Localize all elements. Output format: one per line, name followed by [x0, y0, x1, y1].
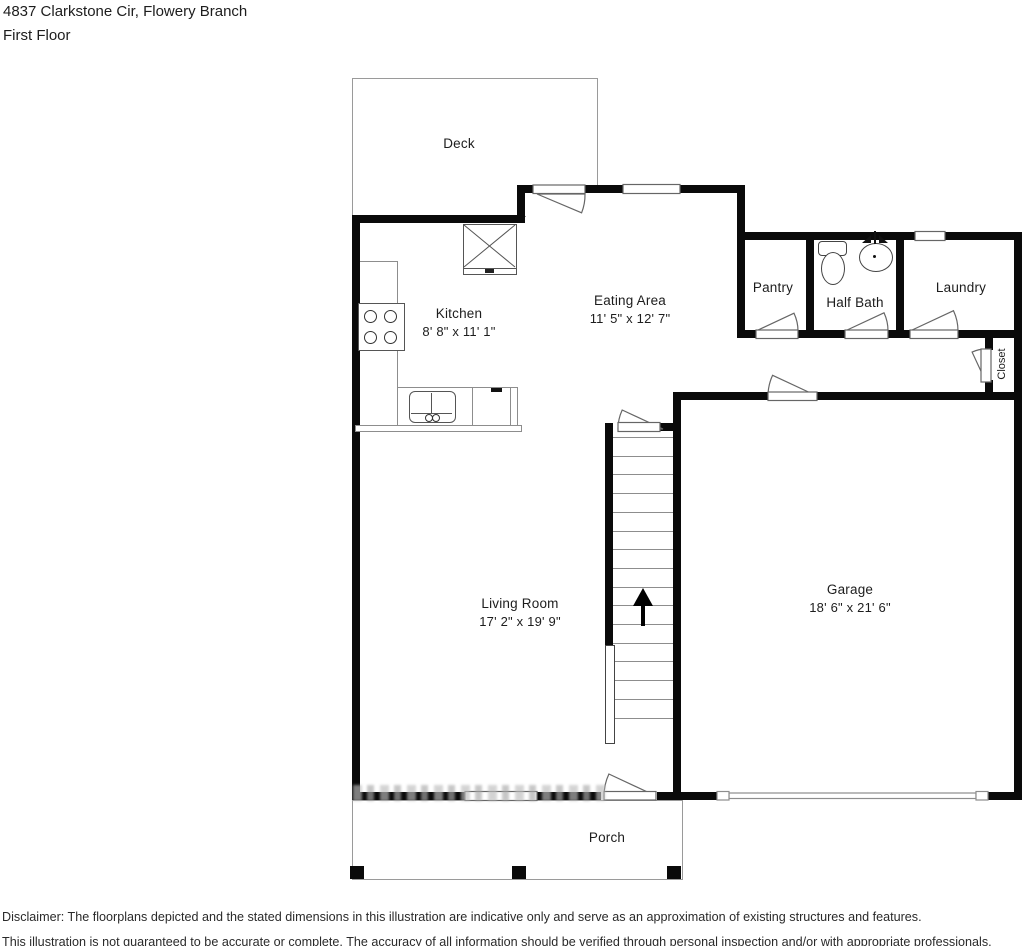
wall-eating-top — [585, 185, 623, 193]
kitchen-label: Kitchen — [436, 306, 482, 321]
stove-burner — [364, 331, 377, 344]
stair-tread — [613, 474, 673, 475]
vent-mark — [485, 269, 494, 273]
stair-tread — [613, 643, 673, 644]
living-room-dims: 17' 2" x 19' 9" — [479, 614, 561, 629]
wall-closet-left — [985, 380, 993, 392]
deck-outline-left — [352, 78, 526, 217]
stove-burner — [364, 310, 377, 323]
toilet-bowl — [821, 252, 845, 285]
wall-back-bottom — [888, 330, 910, 338]
floorplan-canvas: 4837 Clarkstone Cir, Flowery Branch Firs… — [0, 0, 1027, 946]
living-room-label: Living Room — [481, 596, 558, 611]
stair-tread — [613, 661, 673, 662]
eating-area-label: Eating Area — [594, 293, 666, 308]
wall-stairs-left — [605, 423, 613, 645]
watermark — [353, 785, 608, 801]
disclaimer-line-2: This illustration is not guaranteed to b… — [2, 930, 992, 946]
garage-label: Garage — [827, 582, 873, 597]
address-title: 4837 Clarkstone Cir, Flowery Branch — [3, 0, 247, 24]
counter-shelf — [355, 425, 522, 432]
stair-tread — [613, 549, 673, 550]
porch-post — [667, 866, 681, 879]
porch-post — [512, 866, 526, 879]
wall-garage-bottom — [988, 792, 1022, 800]
wall-back-bottom — [737, 330, 756, 338]
stair-tread — [613, 531, 673, 532]
stairs-up-arrow-head — [633, 588, 653, 606]
counter-line-top — [360, 261, 398, 262]
eating-area-dims: 11' 5" x 12' 7" — [590, 311, 671, 326]
stairs-up-arrow — [641, 604, 645, 626]
wall-back-bottom — [958, 330, 1022, 338]
sink-divider — [431, 393, 432, 413]
stove-burner — [384, 331, 397, 344]
refrigerator-box — [463, 224, 517, 269]
wall-garage-top — [817, 392, 1022, 400]
porch-post — [350, 866, 364, 879]
stair-tread — [613, 568, 673, 569]
disclaimer-line-1: Disclaimer: The floorplans depicted and … — [2, 905, 992, 930]
disclaimer-block: Disclaimer: The floorplans depicted and … — [2, 905, 992, 946]
wall-eating-top — [680, 185, 745, 193]
laundry-label: Laundry — [936, 280, 986, 295]
wall-eating-top — [517, 185, 533, 193]
stair-tread — [613, 699, 673, 700]
deck-outline-right — [525, 78, 598, 190]
title-block: 4837 Clarkstone Cir, Flowery Branch Firs… — [3, 0, 247, 48]
floor-label: First Floor — [3, 24, 247, 48]
stair-tread — [613, 680, 673, 681]
stairs-railing — [605, 645, 615, 744]
stair-tread — [613, 493, 673, 494]
wall-garage-top — [673, 392, 768, 400]
wall-back-top — [737, 232, 915, 240]
dishwasher-control — [491, 388, 502, 392]
closet-label: Closet — [996, 348, 1008, 379]
bath-sink — [859, 243, 893, 272]
half-bath-label: Half Bath — [826, 295, 883, 310]
wall-back-top — [945, 232, 1022, 240]
wall-eating-right — [737, 185, 745, 338]
porch-label: Porch — [589, 830, 625, 845]
stair-tread — [613, 437, 673, 438]
deck-label: Deck — [443, 136, 475, 151]
pantry-label: Pantry — [753, 280, 793, 295]
wall-pantry-halfbath — [806, 240, 814, 338]
wall-halfbath-laundry — [896, 240, 904, 338]
dishwasher — [472, 387, 511, 427]
garage-dims: 18' 6" x 21' 6" — [809, 600, 891, 615]
wall-living-bottom — [657, 792, 681, 800]
wall-stairs-top-stub — [660, 423, 673, 431]
wall-closet-left — [985, 338, 993, 350]
stair-tread — [613, 512, 673, 513]
stove-burner — [384, 310, 397, 323]
faucet-icon — [874, 231, 876, 244]
wall-exterior-right — [1014, 232, 1022, 800]
stair-tread — [613, 456, 673, 457]
faucet-knob — [432, 414, 440, 422]
sink-ledge — [411, 413, 452, 414]
wall-garage-left — [673, 392, 681, 800]
sink-drain — [873, 255, 876, 258]
wall-kitchen-top — [352, 215, 525, 223]
stair-tread — [613, 718, 673, 719]
stove — [358, 303, 405, 351]
kitchen-dims: 8' 8" x 11' 1" — [422, 324, 495, 339]
wall-back-bottom — [798, 330, 845, 338]
